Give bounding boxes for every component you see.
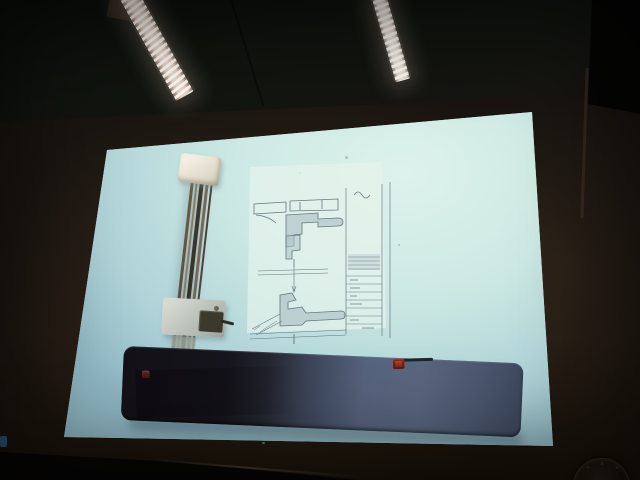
key: [142, 371, 149, 379]
column-top-cap: [177, 153, 221, 187]
technical-drawing: [242, 158, 392, 344]
clock-tick: [586, 466, 590, 469]
cluster-key: [393, 359, 404, 369]
table-edge: [0, 448, 640, 480]
clock-tick: [615, 466, 619, 469]
ceiling: [0, 0, 640, 124]
tool-knob: [214, 306, 219, 311]
lecture-room-photo: ABCDEFGHIJKLMNOPQRSTUVWXYZ··············…: [0, 0, 640, 480]
green-led-speck: [262, 442, 265, 444]
blue-led-speck: [0, 436, 7, 447]
clock-tick: [601, 462, 603, 465]
dust-speck: [398, 244, 400, 246]
wall-clock: [573, 458, 630, 480]
